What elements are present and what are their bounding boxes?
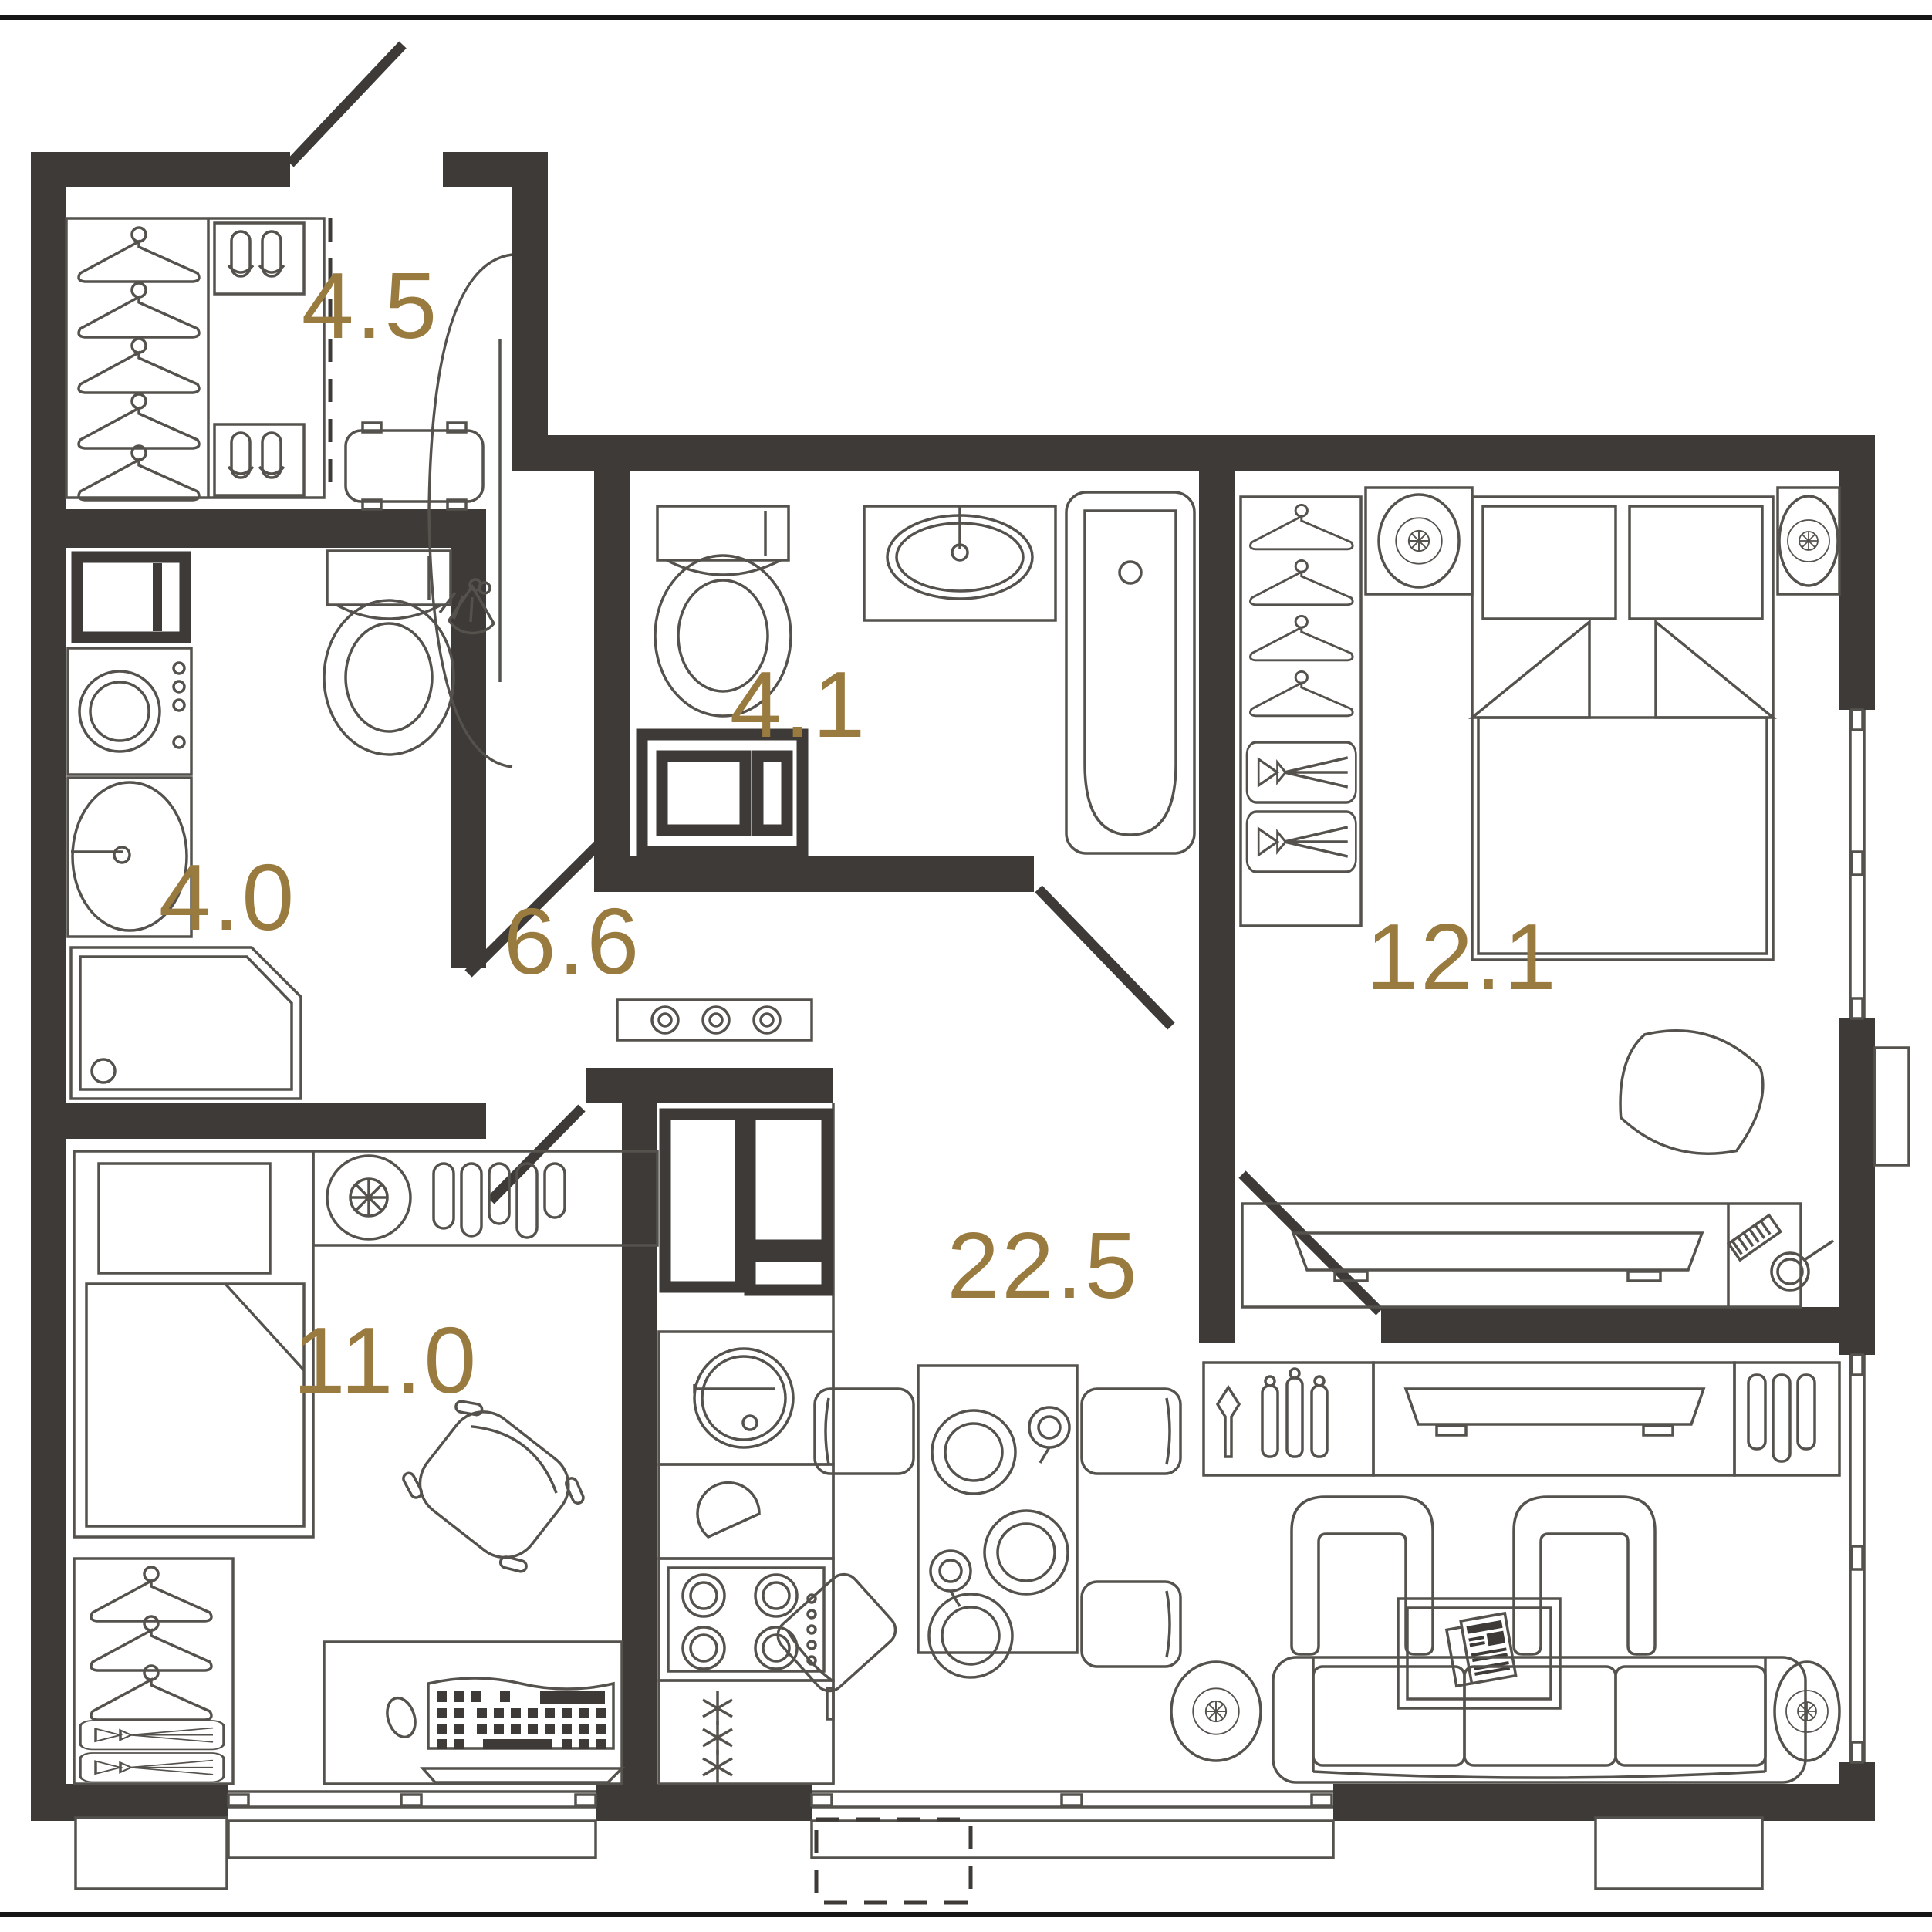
- wall-bedroom-left: [1199, 471, 1235, 1343]
- double-bed-icon: [1472, 497, 1773, 960]
- ceiling-light-niche-left: [1366, 488, 1472, 594]
- hanger-icon: [91, 1666, 211, 1720]
- hanger-icon: [1251, 671, 1353, 715]
- room-label-hallway: 4.5: [302, 253, 440, 358]
- wall-outer-bottom-right: [1333, 1784, 1875, 1821]
- refrigerator-icon: [665, 1114, 827, 1290]
- shirt-drawer-icon: [1247, 742, 1356, 802]
- exterior-pier-right: [1875, 1048, 1909, 1165]
- slipper-box-top: [214, 223, 304, 294]
- toilet-icon: [324, 551, 454, 755]
- tv-console-icon: [1373, 1363, 1734, 1475]
- ceiling-light-icon: [1193, 1688, 1238, 1734]
- living-window-right: [1850, 1355, 1864, 1762]
- floor-light-right: [1775, 1662, 1839, 1761]
- page-border-top: [0, 15, 1932, 20]
- cooktop-icon: [659, 1559, 833, 1680]
- bedroom-wardrobe: [1241, 497, 1361, 926]
- entry-door-swing-icon: [290, 45, 403, 164]
- armchair-icon: [1514, 1497, 1655, 1654]
- hanger-icon: [79, 339, 199, 393]
- chair-icon: [1082, 1389, 1180, 1474]
- washing-machine-icon: [68, 648, 191, 775]
- plate-icon: [932, 1410, 1015, 1494]
- room11-window: [228, 1792, 596, 1858]
- floor-plan-drawing: 4.5: [0, 0, 1932, 1932]
- wall-room11-kitchen: [622, 1103, 657, 1784]
- hanger-icon: [1251, 616, 1353, 660]
- wall-top-right-section: [548, 435, 1875, 471]
- shirt-drawer-icon: [1247, 812, 1356, 872]
- room-label-second: 11.0: [293, 1308, 478, 1413]
- single-bed-icon: [74, 1151, 313, 1537]
- wash-basin-icon: [864, 506, 1056, 620]
- wall-hall-top-right: [443, 152, 548, 187]
- room-label-corridor: 6.6: [504, 889, 642, 994]
- bath41-door-swing-icon: [1039, 889, 1171, 1026]
- wall-outer-right-upper: [1839, 435, 1875, 710]
- armchair-icon: [1292, 1497, 1433, 1654]
- shelf-with-light: [313, 1151, 657, 1245]
- sofa-icon: [1273, 1657, 1805, 1782]
- hand-mirror-icon: [1772, 1241, 1833, 1290]
- bar-bottles-icon: [1262, 1369, 1327, 1457]
- hanger-icon: [91, 1567, 211, 1621]
- monitor-bar-icon: [423, 1768, 622, 1782]
- desk-chair-icon: [393, 1389, 594, 1582]
- hanger-icon: [79, 283, 199, 337]
- balcony-outline-icon: [816, 1819, 971, 1903]
- room-bedroom: 12.1: [1241, 488, 1839, 1307]
- plate-icon: [929, 1594, 1012, 1677]
- mouse-icon: [383, 1694, 420, 1741]
- hanger-icon: [91, 1616, 211, 1670]
- wall-bath40-bottom: [31, 1103, 486, 1139]
- shaker-icon: [1218, 1387, 1239, 1457]
- corner-shower-tray-icon: [71, 947, 301, 1099]
- wall-bedroom-bottom: [1381, 1307, 1875, 1343]
- hanger-icon: [1251, 560, 1353, 604]
- slipper-box-bottom: [214, 424, 304, 495]
- page-border-bottom: [0, 1912, 1932, 1917]
- bedroom-window: [1850, 710, 1864, 1018]
- freezer-icon: [659, 1680, 833, 1784]
- room-label-bedroom: 12.1: [1366, 904, 1558, 1009]
- hanger-icon: [79, 446, 199, 500]
- bathtub-icon: [1066, 492, 1194, 853]
- wall-hall-bath40: [31, 509, 486, 548]
- bath40-cabinet-icon: [77, 557, 185, 637]
- hanger-icon: [79, 228, 199, 282]
- chair-icon: [1082, 1582, 1180, 1667]
- knob-panel-icon: [617, 1000, 812, 1040]
- wall-hall-top-left: [31, 152, 290, 187]
- cup-icon: [1029, 1407, 1069, 1463]
- room-label-main-bath: 4.1: [730, 652, 868, 757]
- floor-light-left: [1171, 1662, 1261, 1761]
- shirt-drawer-icon: [80, 1721, 224, 1749]
- ceiling-light-niche-right: [1778, 488, 1839, 594]
- wall-bath41-bottom: [594, 856, 1034, 892]
- room-shower-bath: 4.0: [68, 551, 454, 1099]
- ceiling-light-icon: [1786, 1690, 1828, 1732]
- wall-outer-bottom-left: [31, 1784, 228, 1821]
- ceiling-light-icon: [327, 1156, 410, 1239]
- ceiling-light-icon: [1396, 518, 1441, 563]
- room-label-shower-bath: 4.0: [159, 845, 297, 950]
- room-corridor: 6.6: [504, 889, 812, 1040]
- wall-bath41-left: [594, 471, 630, 892]
- desk-with-keyboard: [324, 1642, 622, 1784]
- bedroom-chair-icon: [1607, 1015, 1775, 1168]
- hanger-icon: [1251, 505, 1353, 549]
- plate-icon: [985, 1511, 1068, 1594]
- wall-kitchen-top: [586, 1068, 833, 1103]
- ceiling-light-icon: [1788, 520, 1829, 562]
- wall-outer-right-middle: [1839, 1018, 1875, 1355]
- wall-outer-left: [31, 152, 66, 1821]
- bar-cabinet: [1204, 1363, 1373, 1475]
- bedroom-door-swing-icon: [1242, 1174, 1380, 1312]
- wall-outer-bottom-center: [596, 1784, 812, 1821]
- room-second: 11.0: [74, 1151, 657, 1784]
- books-icon: [434, 1164, 565, 1238]
- bedroom-dresser: [1242, 1204, 1833, 1307]
- floor-plan-page: 4.5: [0, 0, 1932, 1932]
- kitchen-strip: [659, 1103, 833, 1784]
- living-window-bottom: [812, 1792, 1333, 1858]
- entry-bench-icon: [346, 423, 483, 509]
- chair-icon: [815, 1389, 914, 1474]
- room-label-living: 22.5: [947, 1213, 1139, 1318]
- walls: [31, 152, 1875, 1821]
- hanger-icon: [79, 394, 199, 448]
- glass-rack-icon: [1734, 1363, 1839, 1475]
- shirt-drawer-icon: [80, 1753, 224, 1782]
- droplet-counter-icon: [659, 1464, 833, 1559]
- room-living: 22.5: [772, 1213, 1839, 1782]
- wall-hall-right: [512, 187, 548, 471]
- exterior-ledge-left: [76, 1818, 227, 1889]
- exterior-ledge-right: [1596, 1818, 1762, 1889]
- room11-wardrobe: [74, 1559, 233, 1784]
- comb-icon: [1728, 1215, 1780, 1260]
- room-main-bath: 4.1: [642, 492, 1194, 853]
- kitchen-sink-icon: [659, 1332, 833, 1464]
